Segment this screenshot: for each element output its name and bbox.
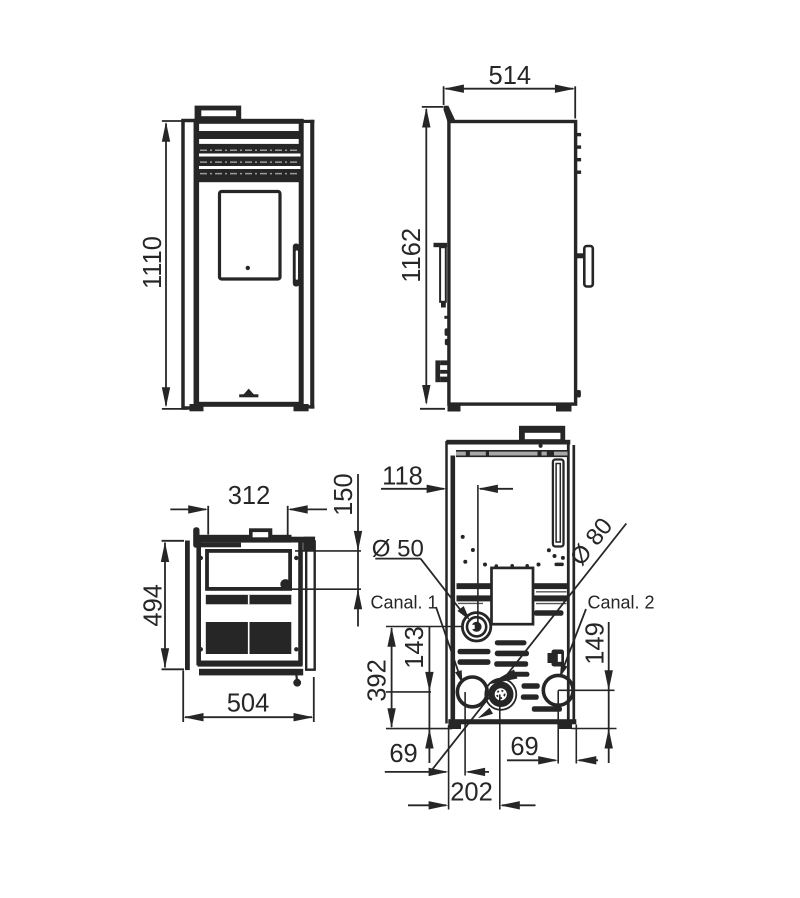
svg-text:202: 202: [450, 779, 493, 807]
svg-text:69: 69: [389, 740, 417, 768]
svg-text:Canal. 1: Canal. 1: [371, 593, 438, 613]
svg-text:504: 504: [227, 690, 270, 718]
svg-text:392: 392: [364, 659, 392, 702]
svg-text:1110: 1110: [139, 236, 167, 289]
svg-text:69: 69: [510, 733, 538, 761]
svg-text:494: 494: [140, 584, 168, 627]
svg-text:514: 514: [489, 62, 532, 90]
svg-text:312: 312: [228, 482, 271, 510]
svg-text:149: 149: [582, 622, 610, 665]
svg-text:118: 118: [382, 463, 423, 491]
svg-text:Canal. 2: Canal. 2: [588, 593, 655, 613]
svg-text:1162: 1162: [398, 228, 426, 283]
svg-text:150: 150: [330, 473, 358, 516]
svg-text:143: 143: [401, 626, 429, 669]
